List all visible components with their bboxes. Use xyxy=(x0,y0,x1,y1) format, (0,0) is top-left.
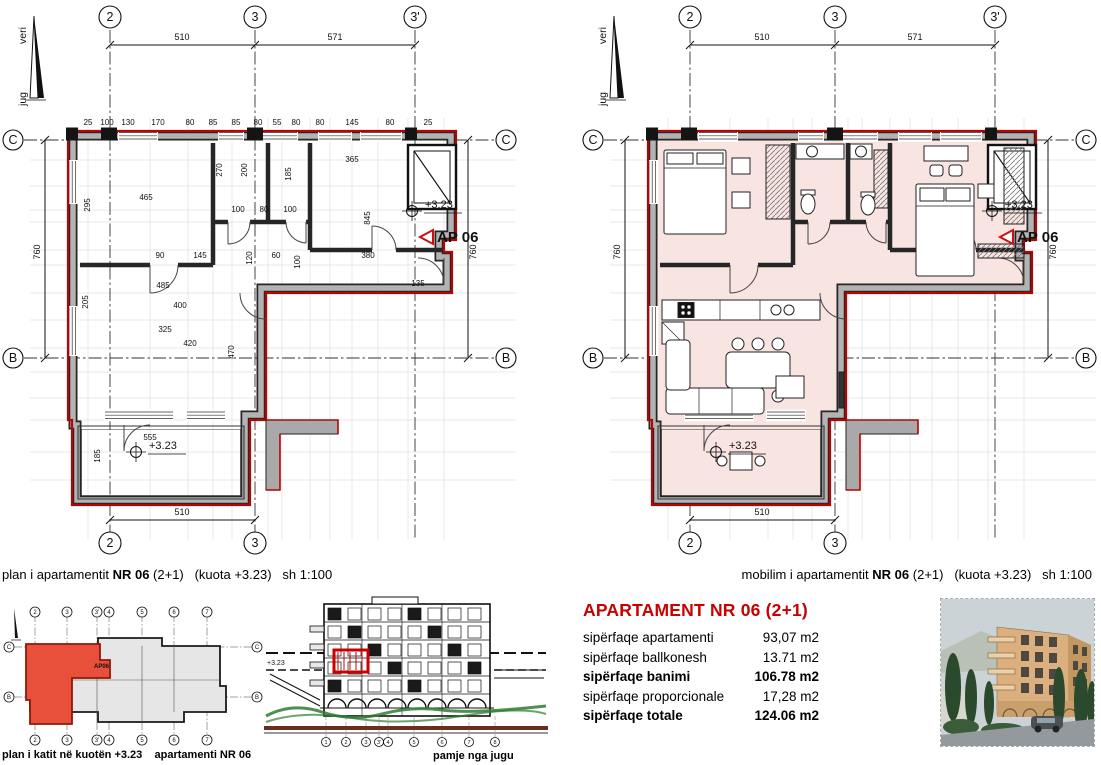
svg-text:B: B xyxy=(589,351,597,365)
svg-text:veri: veri xyxy=(597,27,609,44)
caption-left-pre: plan i apartamentit xyxy=(2,567,113,582)
svg-text:365: 365 xyxy=(345,155,359,164)
north-arrow: verijug xyxy=(17,16,46,107)
svg-text:5: 5 xyxy=(412,740,415,746)
svg-text:120: 120 xyxy=(245,251,254,265)
svg-text:jug: jug xyxy=(597,92,609,107)
caption-right-post: (2+1) (kuota +3.23) sh 1:100 xyxy=(909,567,1092,582)
caption-left-number: NR 06 xyxy=(113,567,150,582)
svg-text:185: 185 xyxy=(284,167,293,181)
svg-text:jug: jug xyxy=(17,92,29,107)
svg-text:90: 90 xyxy=(156,251,165,260)
south-elevation-drawing: +3.231233'45678 xyxy=(262,596,550,748)
svg-text:+3.23: +3.23 xyxy=(1005,199,1033,211)
svg-text:380: 380 xyxy=(361,251,375,260)
wall-step xyxy=(266,420,338,490)
svg-text:510: 510 xyxy=(754,32,769,42)
svg-text:100: 100 xyxy=(293,255,302,269)
svg-text:veri: veri xyxy=(17,27,29,44)
svg-text:2: 2 xyxy=(107,536,114,550)
key-plan: AP0622333'3'44556677CCBB xyxy=(2,602,264,748)
svg-text:3': 3' xyxy=(990,10,999,24)
svg-text:2: 2 xyxy=(687,10,694,24)
svg-text:100: 100 xyxy=(231,205,245,214)
svg-text:571: 571 xyxy=(907,32,922,42)
svg-text:3': 3' xyxy=(95,738,99,744)
info-rows: sipërfaqe apartamenti93,07 m2sipërfaqe b… xyxy=(583,628,829,726)
caption-left-post: (2+1) (kuota +3.23) sh 1:100 xyxy=(149,567,332,582)
svg-text:3: 3 xyxy=(832,536,839,550)
svg-text:C: C xyxy=(7,645,12,651)
svg-text:80: 80 xyxy=(292,118,301,127)
svg-text:B: B xyxy=(9,351,17,365)
svg-text:3: 3 xyxy=(364,740,367,746)
svg-text:3: 3 xyxy=(252,10,259,24)
svg-text:85: 85 xyxy=(232,118,241,127)
svg-text:2: 2 xyxy=(687,536,694,550)
info-row-value: 93,07 m2 xyxy=(727,628,819,648)
svg-text:270: 270 xyxy=(215,163,224,177)
svg-text:B: B xyxy=(502,351,510,365)
svg-text:+3.23: +3.23 xyxy=(149,440,177,452)
floor-plan-dimensioned: 5105715107607602510013017080858580558080… xyxy=(0,0,560,562)
svg-text:+3.23: +3.23 xyxy=(267,660,285,667)
svg-text:571: 571 xyxy=(327,32,342,42)
svg-text:+3.23: +3.23 xyxy=(425,199,453,211)
svg-text:760: 760 xyxy=(612,244,622,259)
svg-text:C: C xyxy=(255,645,260,651)
outer-walls xyxy=(73,136,451,500)
svg-text:145: 145 xyxy=(193,251,207,260)
svg-text:485: 485 xyxy=(156,281,170,290)
svg-text:55: 55 xyxy=(273,118,282,127)
drawing-sheet: 5105715107607602510013017080858580558080… xyxy=(0,0,1101,765)
info-row: sipërfaqe ballkonesh13.71 m2 xyxy=(583,648,819,668)
svg-text:130: 130 xyxy=(121,118,135,127)
caption-plan-right: mobilim i apartamentit NR 06 (2+1) (kuot… xyxy=(742,567,1092,582)
floor-plan-furnished: 510571510760760+3.23AP 06+3.23233'23CCBB… xyxy=(580,0,1101,562)
svg-text:B: B xyxy=(255,695,259,701)
svg-text:2: 2 xyxy=(107,10,114,24)
svg-text:170: 170 xyxy=(151,118,165,127)
info-row-value: 124.06 m2 xyxy=(727,706,819,726)
svg-text:25: 25 xyxy=(84,118,93,127)
svg-text:205: 205 xyxy=(81,295,90,309)
windows xyxy=(67,130,402,421)
svg-text:60: 60 xyxy=(272,251,281,260)
svg-text:6: 6 xyxy=(440,740,443,746)
svg-text:7: 7 xyxy=(467,740,470,746)
svg-text:B: B xyxy=(1082,351,1090,365)
svg-text:3: 3 xyxy=(252,536,259,550)
svg-text:4: 4 xyxy=(386,740,389,746)
svg-text:80: 80 xyxy=(316,118,325,127)
svg-text:845: 845 xyxy=(363,211,372,225)
keyplan-caption: plan i katit në kuotën +3.23 apartamenti… xyxy=(2,749,251,761)
svg-text:C: C xyxy=(588,133,597,147)
svg-text:185: 185 xyxy=(93,449,102,463)
elevation-caption: pamje nga jugu xyxy=(433,750,514,762)
svg-text:3': 3' xyxy=(410,10,419,24)
svg-text:3: 3 xyxy=(832,10,839,24)
svg-text:AP 06: AP 06 xyxy=(1017,229,1058,246)
svg-text:85: 85 xyxy=(209,118,218,127)
svg-text:3': 3' xyxy=(377,740,381,746)
svg-text:25: 25 xyxy=(424,118,433,127)
caption-right-pre: mobilim i apartamentit xyxy=(742,567,873,582)
svg-text:100: 100 xyxy=(100,118,114,127)
svg-text:510: 510 xyxy=(174,507,189,517)
interior-walls xyxy=(80,143,444,265)
info-row-label: sipërfaqe totale xyxy=(583,706,727,726)
svg-text:3': 3' xyxy=(95,610,99,616)
wall-step xyxy=(846,420,918,490)
svg-text:B: B xyxy=(7,695,11,701)
elevation-landscape xyxy=(264,706,548,733)
svg-text:760: 760 xyxy=(1048,244,1058,259)
svg-text:80: 80 xyxy=(260,205,269,214)
info-row-value: 13.71 m2 xyxy=(727,648,819,668)
info-row-label: sipërfaqe ballkonesh xyxy=(583,648,727,668)
svg-text:8: 8 xyxy=(493,740,496,746)
svg-text:C: C xyxy=(8,133,17,147)
svg-text:100: 100 xyxy=(283,205,297,214)
svg-text:80: 80 xyxy=(254,118,263,127)
info-row-label: sipërfaqe banimi xyxy=(583,667,727,687)
svg-text:1: 1 xyxy=(324,740,327,746)
svg-text:+3.23: +3.23 xyxy=(729,440,757,452)
svg-text:C: C xyxy=(501,133,510,147)
info-row: sipërfaqe totale124.06 m2 xyxy=(583,706,819,726)
building-render-photo xyxy=(941,599,1094,746)
info-row-value: 106.78 m2 xyxy=(727,667,819,687)
svg-text:420: 420 xyxy=(183,339,197,348)
svg-text:80: 80 xyxy=(386,118,395,127)
svg-text:295: 295 xyxy=(83,198,92,212)
svg-text:C: C xyxy=(1081,133,1090,147)
info-row: sipërfaqe proporcionale17,28 m2 xyxy=(583,687,819,707)
info-row-label: sipërfaqe apartamenti xyxy=(583,628,727,648)
svg-text:510: 510 xyxy=(174,32,189,42)
svg-text:400: 400 xyxy=(173,301,187,310)
caption-plan-left: plan i apartamentit NR 06 (2+1) (kuota +… xyxy=(2,567,332,582)
svg-text:80: 80 xyxy=(186,118,195,127)
svg-text:2: 2 xyxy=(344,740,347,746)
svg-text:AP 06: AP 06 xyxy=(437,229,478,246)
svg-text:145: 145 xyxy=(345,118,359,127)
info-row-label: sipërfaqe proporcionale xyxy=(583,687,727,707)
svg-text:465: 465 xyxy=(139,193,153,202)
svg-text:760: 760 xyxy=(468,244,478,259)
info-title: APARTAMENT NR 06 (2+1) xyxy=(583,600,829,621)
info-row-value: 17,28 m2 xyxy=(727,687,819,707)
caption-right-number: NR 06 xyxy=(872,567,909,582)
balcony-railing xyxy=(78,426,244,499)
svg-text:760: 760 xyxy=(32,244,42,259)
svg-text:AP06: AP06 xyxy=(94,664,110,670)
svg-text:470: 470 xyxy=(227,345,236,359)
elevation-building xyxy=(310,597,490,716)
keyplan-north-arrow xyxy=(11,608,21,640)
svg-text:135: 135 xyxy=(411,279,425,288)
info-row: sipërfaqe banimi106.78 m2 xyxy=(583,667,819,687)
info-row: sipërfaqe apartamenti93,07 m2 xyxy=(583,628,819,648)
svg-text:510: 510 xyxy=(754,507,769,517)
north-arrow: verijug xyxy=(597,16,626,107)
apartment-info-panel: APARTAMENT NR 06 (2+1) sipërfaqe apartam… xyxy=(583,600,829,726)
svg-text:200: 200 xyxy=(240,163,249,177)
svg-text:325: 325 xyxy=(158,325,172,334)
